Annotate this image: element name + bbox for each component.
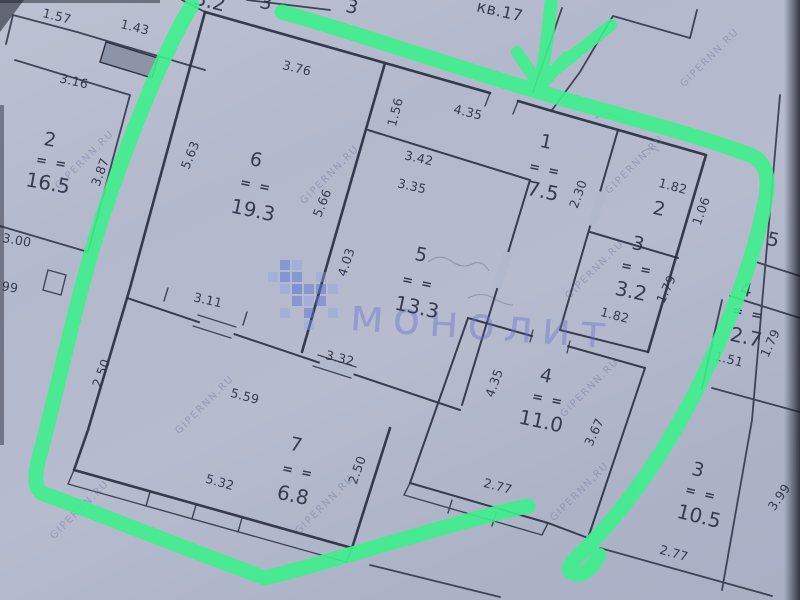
photo-edge-right [784,0,800,600]
highlight-outline-top-right [282,12,767,574]
photo-edge-top [0,0,160,3]
photo-corner-shadow [0,0,24,32]
photo-edge-left [0,105,4,445]
highlight-outline-left-bottom [36,5,528,578]
entrance-arrow-shaft [542,2,551,72]
entrance-arrow-stroke [551,25,611,73]
highlight-layer [0,0,800,600]
floorplan-photo: GIPERNN.RU GIPERNN.RU GIPERNN.RU GIPERNN… [0,0,800,600]
